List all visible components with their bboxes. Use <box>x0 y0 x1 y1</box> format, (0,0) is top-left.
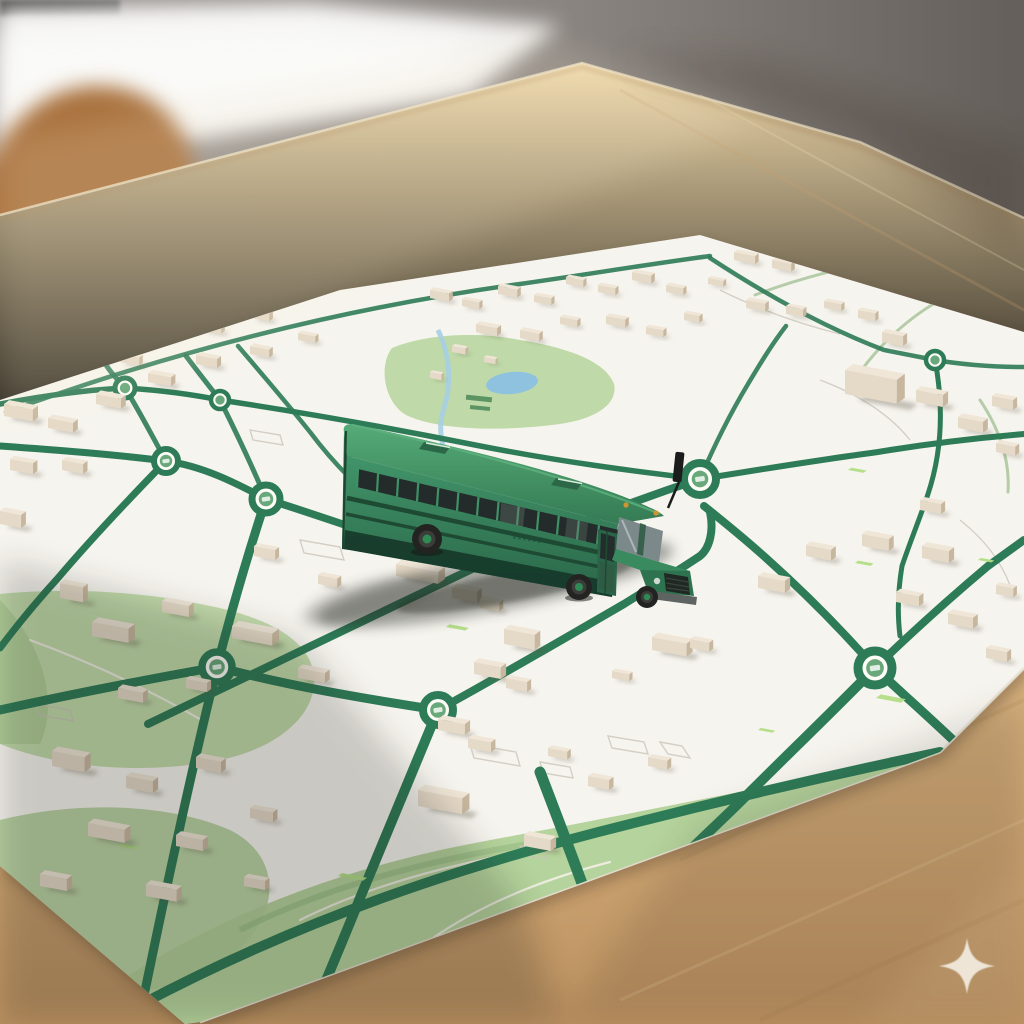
bus-wheel <box>636 586 658 608</box>
bus-window-mullion <box>477 497 478 515</box>
bus-window-mullion <box>357 469 358 487</box>
roundabout <box>858 651 892 685</box>
headlight <box>654 578 660 584</box>
roundabout <box>684 463 716 495</box>
bus-window-mullion <box>417 483 418 501</box>
bus-wheel <box>412 524 442 554</box>
bus-window-mullion <box>497 502 499 521</box>
bus-window-mullion <box>437 488 438 506</box>
bus-wheel <box>566 574 592 600</box>
roundabout <box>154 449 178 473</box>
roundabout <box>211 391 229 409</box>
amber-marker-light <box>653 510 658 515</box>
photo-scene: A green toy school bus standing on a tac… <box>0 0 1024 1024</box>
bus-window-mullion <box>457 492 458 510</box>
bus-window-mullion <box>397 478 398 496</box>
roundabout <box>926 351 944 369</box>
bus-window-mullion <box>377 474 378 492</box>
scene-canvas <box>0 0 1024 1024</box>
amber-marker-light <box>623 502 628 507</box>
roundabout <box>252 485 280 513</box>
